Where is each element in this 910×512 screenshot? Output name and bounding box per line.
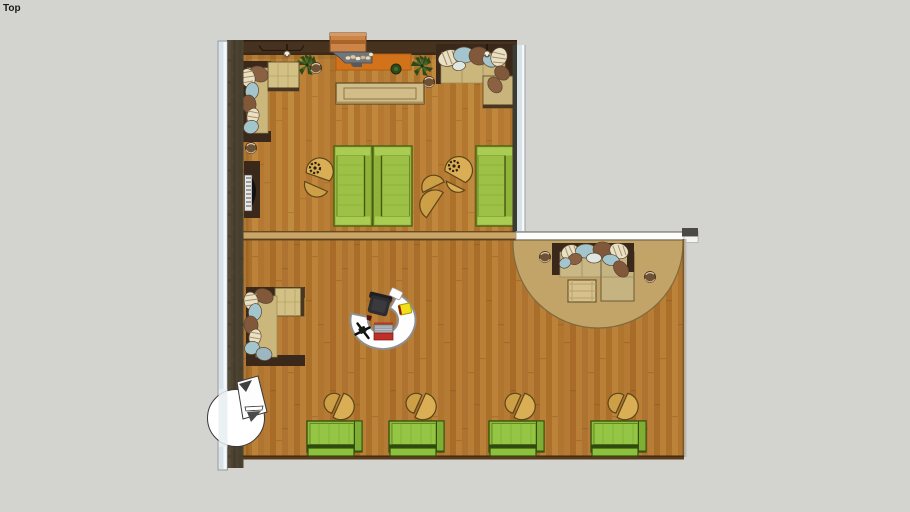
svg-text:Top: Top — [3, 3, 21, 14]
